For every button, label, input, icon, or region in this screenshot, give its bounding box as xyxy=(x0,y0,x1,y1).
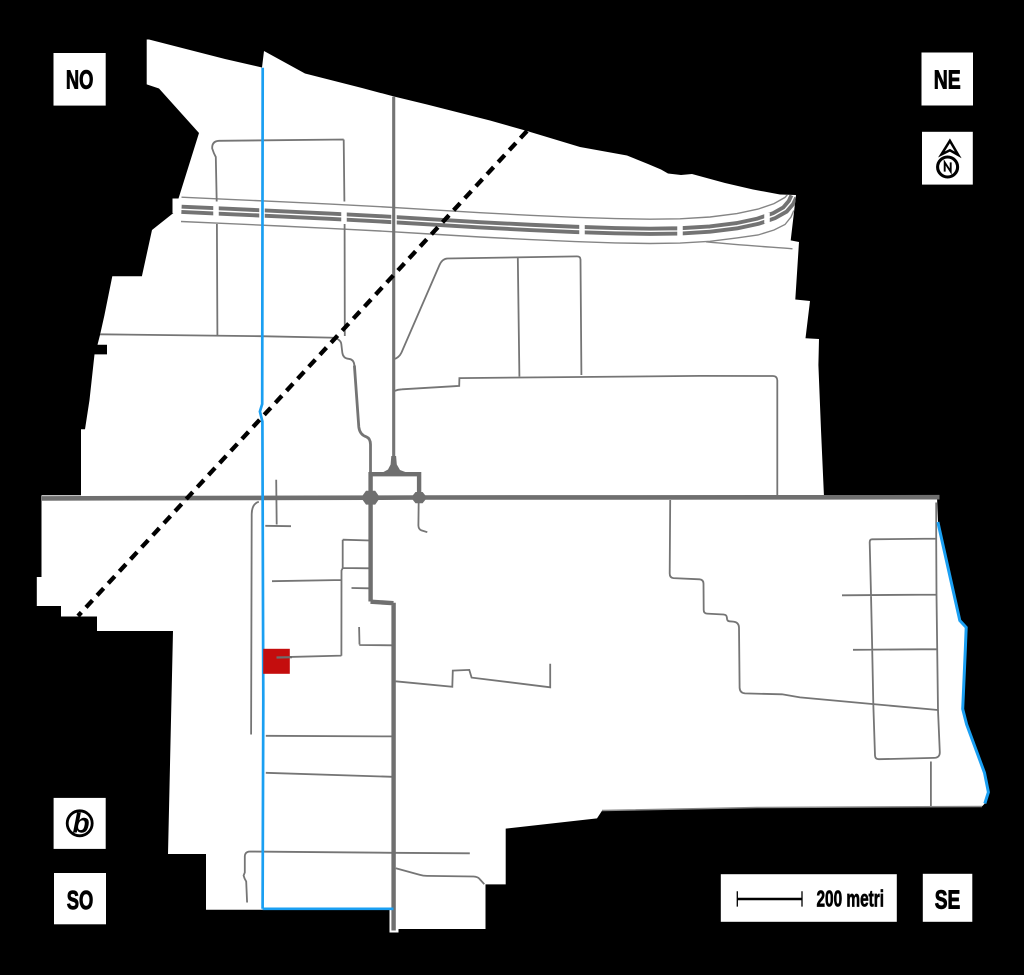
svg-text:NE: NE xyxy=(934,66,961,94)
svg-text:200 metri: 200 metri xyxy=(817,886,885,912)
svg-text:NO: NO xyxy=(66,67,94,95)
svg-text:b: b xyxy=(72,808,89,839)
svg-text:SO: SO xyxy=(67,887,94,915)
svg-text:SE: SE xyxy=(935,886,961,914)
